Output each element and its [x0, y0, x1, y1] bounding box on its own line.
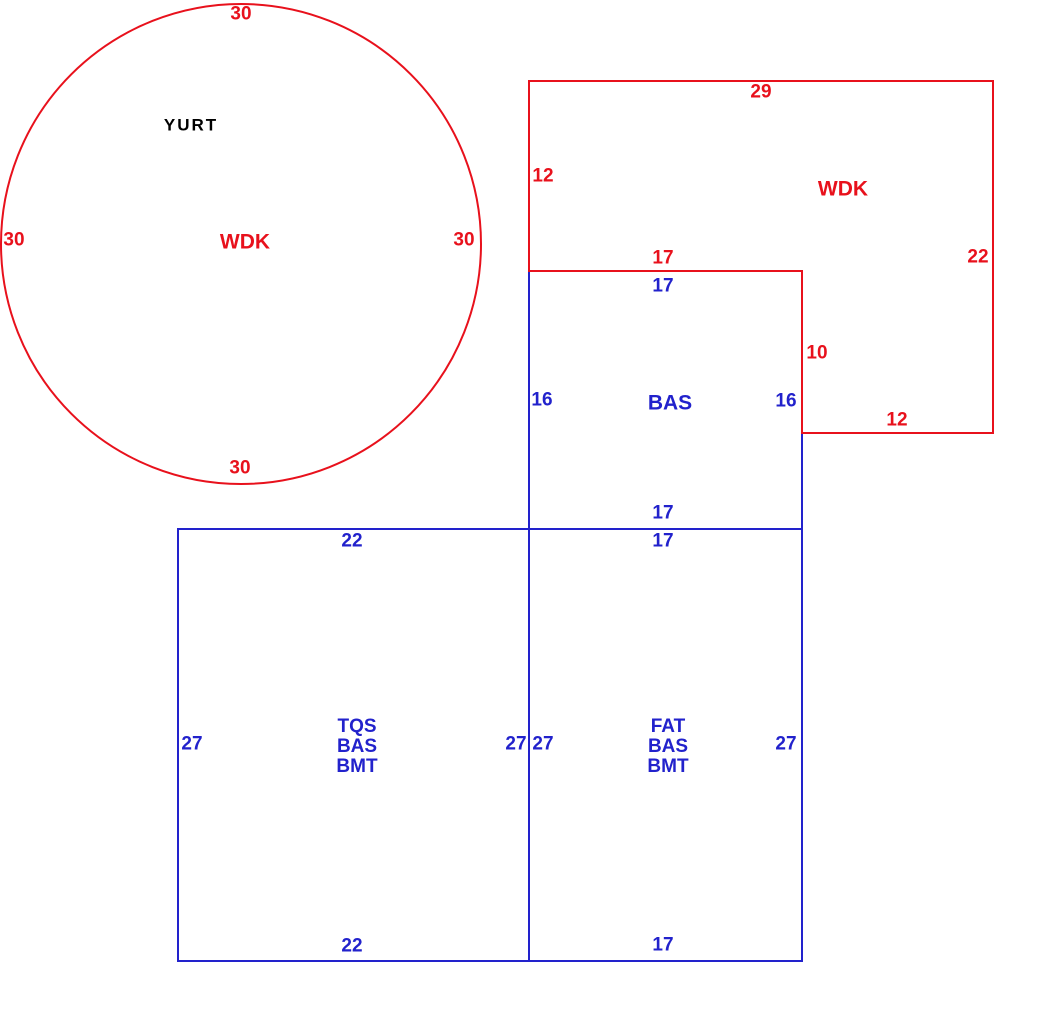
bas-dim-bottom: 17 — [652, 504, 673, 523]
yurt-dim-right: 30 — [453, 231, 474, 250]
fat-area-line-3: BMT — [647, 757, 688, 777]
yurt-dim-left: 30 — [3, 231, 24, 250]
tqs-dim-left: 27 — [181, 735, 202, 754]
wdk-dim-top: 29 — [750, 83, 771, 102]
wdk-dim-bottom: 12 — [886, 411, 907, 430]
sketch-lines — [0, 0, 1045, 1013]
tqs-area-line-1: TQS — [336, 717, 377, 737]
bas-dim-top: 17 — [652, 277, 673, 296]
wdk-dim-step-right: 10 — [806, 344, 827, 363]
wdk-dim-step-bottom: 17 — [652, 249, 673, 268]
fat-dim-bottom: 17 — [652, 936, 673, 955]
floor-sketch-canvas: 30 30 30 30 YURT WDK 29 12 WDK 22 17 10 … — [0, 0, 1045, 1013]
wdk-area-label: WDK — [818, 179, 868, 200]
bas-dim-left: 16 — [531, 391, 552, 410]
tqs-dim-bottom: 22 — [341, 937, 362, 956]
yurt-dim-top: 30 — [230, 5, 251, 24]
yurt-dim-bottom: 30 — [229, 459, 250, 478]
fat-area-label: FAT BAS BMT — [647, 717, 688, 777]
bas-dim-right: 16 — [775, 392, 796, 411]
tqs-dim-right: 27 — [505, 735, 526, 754]
fat-dim-right: 27 — [775, 735, 796, 754]
yurt-area-label: WDK — [220, 232, 270, 253]
tqs-area-line-2: BAS — [336, 737, 377, 757]
fat-area-line-2: BAS — [647, 737, 688, 757]
tqs-area-label: TQS BAS BMT — [336, 717, 377, 777]
yurt-building-label: YURT — [164, 117, 218, 134]
fat-dim-left: 27 — [532, 735, 553, 754]
fat-area-line-1: FAT — [647, 717, 688, 737]
tqs-dim-top: 22 — [341, 532, 362, 551]
wdk-dim-left: 12 — [532, 167, 553, 186]
wdk-dim-right: 22 — [967, 248, 988, 267]
bas-area-label: BAS — [648, 393, 692, 414]
tqs-area-line-3: BMT — [336, 757, 377, 777]
fat-dim-top: 17 — [652, 532, 673, 551]
wdk-deck-outline — [529, 81, 993, 433]
